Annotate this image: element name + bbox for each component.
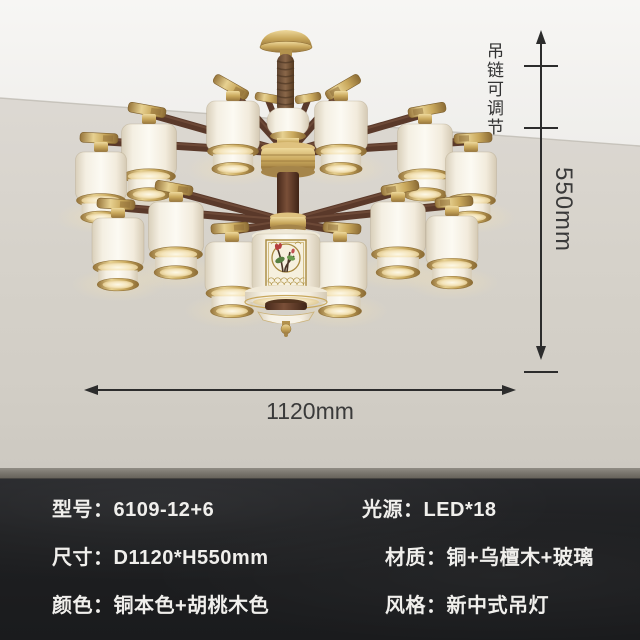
chain-adjustable-note: 吊链可调节 bbox=[481, 42, 506, 137]
width-dimension-line bbox=[97, 389, 503, 391]
lamp-shade bbox=[426, 206, 478, 289]
height-value: 550mm bbox=[549, 167, 577, 252]
height-dimension-line bbox=[540, 43, 542, 349]
product-card: 吊链可调节 550mm 1120mm 型号：6109-12+6 光源：LED*1… bbox=[0, 0, 640, 640]
arrow-up-icon bbox=[536, 30, 546, 44]
lamp-shade bbox=[315, 91, 368, 175]
arrow-right-icon bbox=[502, 385, 516, 395]
arrow-left-icon bbox=[84, 385, 98, 395]
arrow-down-icon bbox=[536, 346, 546, 360]
spec-model: 型号：6109-12+6 bbox=[52, 496, 214, 524]
spec-light-source: 光源：LED*18 bbox=[362, 496, 497, 524]
spec-material: 材质：铜+乌檀木+玻璃 bbox=[385, 544, 594, 572]
center-wood-column bbox=[270, 172, 306, 237]
lamp-shade bbox=[149, 192, 204, 279]
dimension-tick-mid bbox=[524, 127, 558, 129]
dimension-tick-top bbox=[524, 65, 558, 67]
lamp-shade bbox=[371, 192, 426, 279]
dimension-tick-bottom bbox=[524, 371, 558, 373]
product-photo: 吊链可调节 550mm 1120mm bbox=[0, 0, 640, 468]
bottom-finial bbox=[258, 299, 314, 337]
lamp-shade bbox=[207, 91, 260, 175]
lamp-shade bbox=[92, 208, 144, 291]
spec-style: 风格：新中式吊灯 bbox=[385, 592, 549, 620]
width-value: 1120mm bbox=[130, 398, 490, 425]
spec-size: 尺寸：D1120*H550mm bbox=[52, 544, 269, 572]
spec-panel: 型号：6109-12+6 光源：LED*18 尺寸：D1120*H550mm 材… bbox=[0, 479, 640, 640]
hanging-rope bbox=[277, 54, 294, 114]
spec-color: 颜色：铜本色+胡桃木色 bbox=[52, 592, 269, 620]
wall-base-strip bbox=[0, 468, 640, 479]
lotus-panel bbox=[265, 240, 310, 289]
